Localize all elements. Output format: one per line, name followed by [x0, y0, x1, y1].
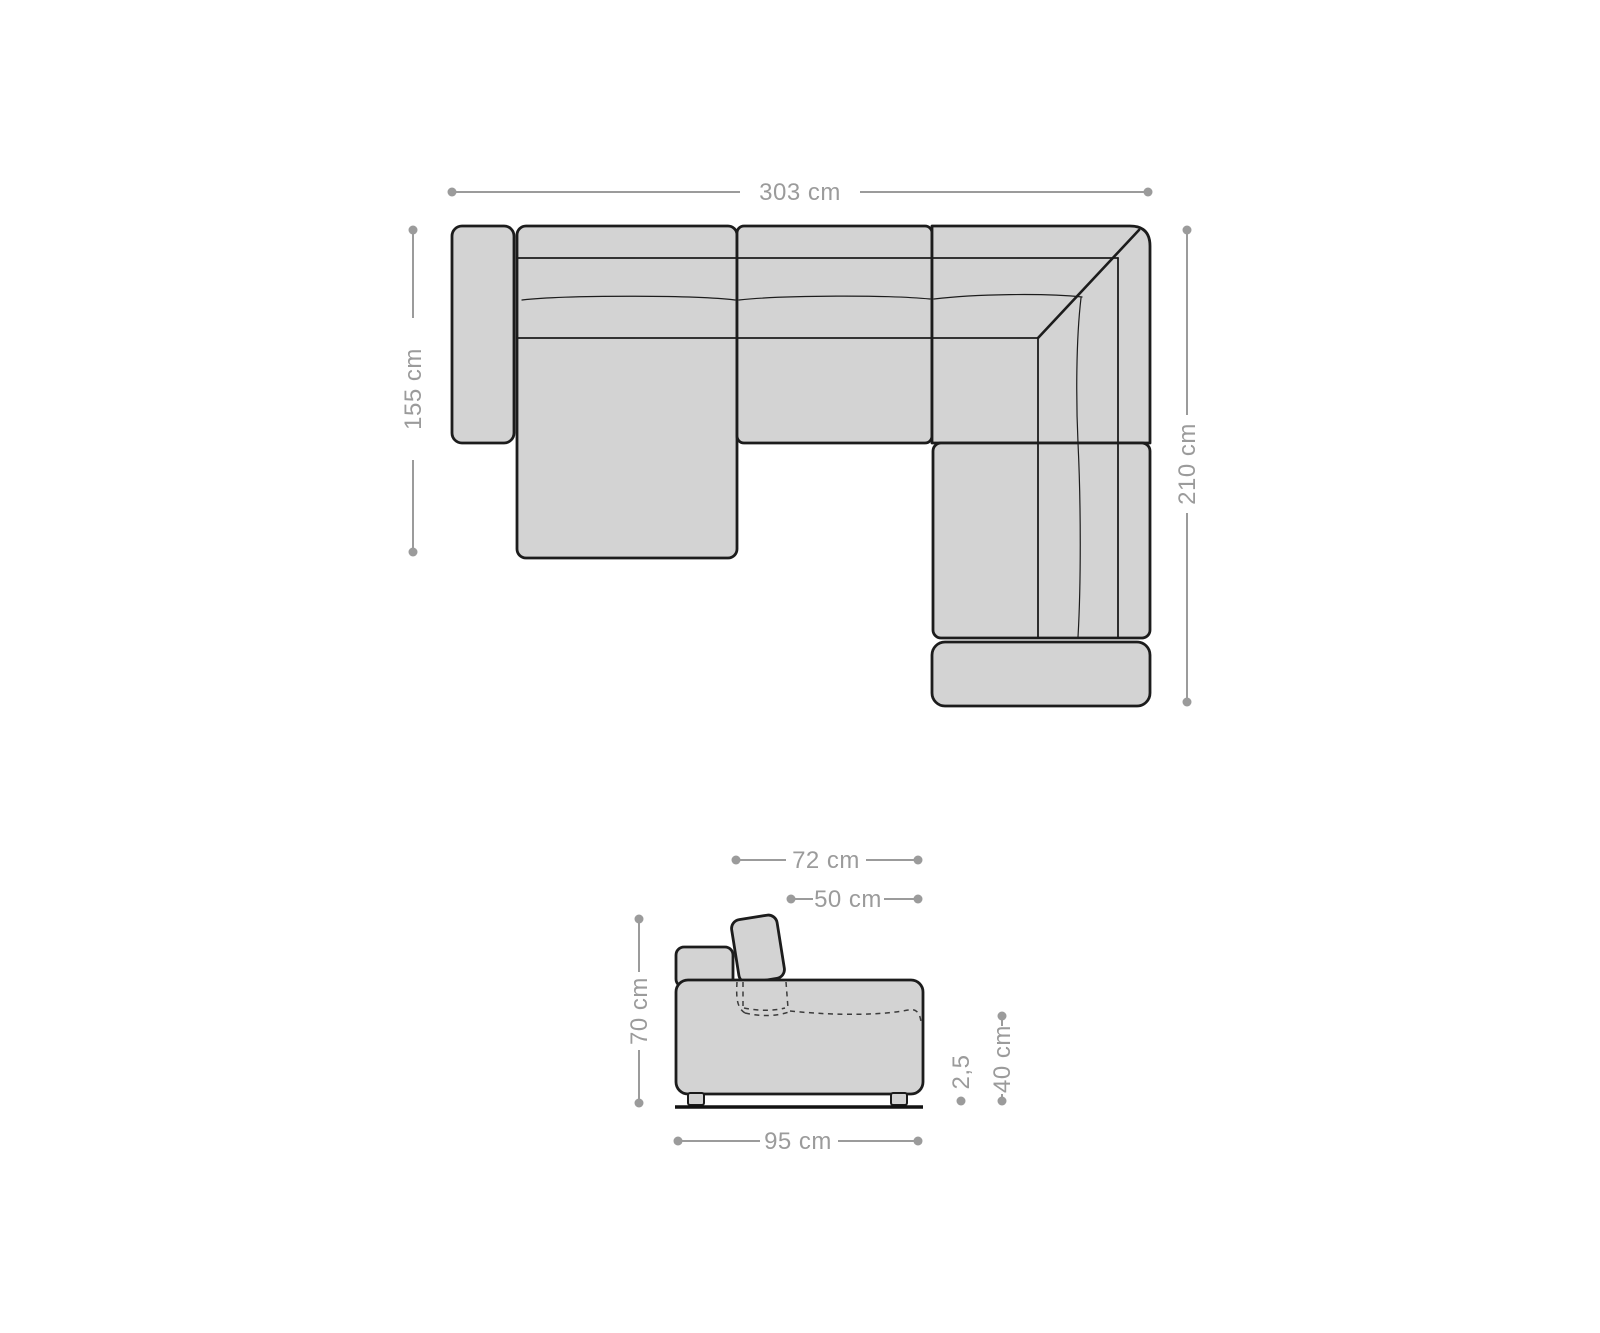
side-view-sofa-outline — [675, 914, 923, 1107]
dimension-endpoint-dot — [448, 188, 457, 197]
dimension-endpoint-dot — [409, 548, 418, 557]
dimension-seat-depth: 50 cm — [787, 886, 923, 913]
dimension-endpoint-dot — [1144, 188, 1153, 197]
dimension-endpoint-dot — [409, 226, 418, 235]
dimension-label-foot-height: 2,5 — [948, 1055, 975, 1090]
dimension-label-total-height: 70 cm — [626, 977, 653, 1045]
dimension-label-depth-with-headrest: 72 cm — [792, 847, 860, 874]
dimension-endpoint-dot — [914, 895, 923, 904]
dimension-depth-with-headrest: 72 cm — [732, 847, 923, 874]
sofa-foot-right — [891, 1093, 907, 1105]
dimension-chaise-depth: 155 cm — [400, 226, 427, 557]
headrest-cushion — [730, 914, 785, 984]
dimension-endpoint-dot — [998, 1012, 1007, 1021]
dimension-corner-depth: 210 cm — [1174, 226, 1201, 707]
dimension-label-seat-depth: 50 cm — [814, 886, 882, 913]
sofa-foot-left — [688, 1093, 704, 1105]
dimension-total-height: 70 cm — [626, 915, 653, 1108]
dimension-endpoint-dot — [957, 1097, 966, 1106]
chaise-module — [517, 226, 737, 558]
sofa-dimension-diagram: 303 cm 155 cm 210 cm — [0, 0, 1600, 1333]
dimension-total-depth: 95 cm — [674, 1128, 923, 1155]
dimension-label-overall-width: 303 cm — [759, 179, 841, 206]
dimension-endpoint-dot — [914, 856, 923, 865]
dimension-label-seat-height: 40 cm — [989, 1025, 1016, 1093]
sofa-body-profile — [676, 980, 923, 1094]
dimension-label-total-depth: 95 cm — [764, 1128, 832, 1155]
dimension-endpoint-dot — [732, 856, 741, 865]
dimension-endpoint-dot — [998, 1097, 1007, 1106]
dimension-endpoint-dot — [635, 915, 644, 924]
dimension-endpoint-dot — [1183, 698, 1192, 707]
dimension-endpoint-dot — [914, 1137, 923, 1146]
bottom-armrest — [932, 642, 1150, 706]
side-view: 72 cm 50 cm 70 cm 95 cm 2,5 — [626, 847, 1016, 1155]
dimension-seat-height: 40 cm — [989, 1012, 1016, 1106]
dimension-endpoint-dot — [1183, 226, 1192, 235]
diagram-canvas: 303 cm 155 cm 210 cm — [0, 0, 1600, 1333]
dimension-foot-height: 2,5 — [948, 1055, 975, 1106]
dimension-endpoint-dot — [635, 1099, 644, 1108]
dimension-endpoint-dot — [787, 895, 796, 904]
dimension-label-corner-depth: 210 cm — [1174, 423, 1201, 505]
dimension-overall-width: 303 cm — [448, 179, 1153, 206]
top-view: 303 cm 155 cm 210 cm — [400, 179, 1201, 707]
dimension-endpoint-dot — [674, 1137, 683, 1146]
left-armrest — [452, 226, 514, 443]
dimension-label-chaise-depth: 155 cm — [400, 348, 427, 430]
